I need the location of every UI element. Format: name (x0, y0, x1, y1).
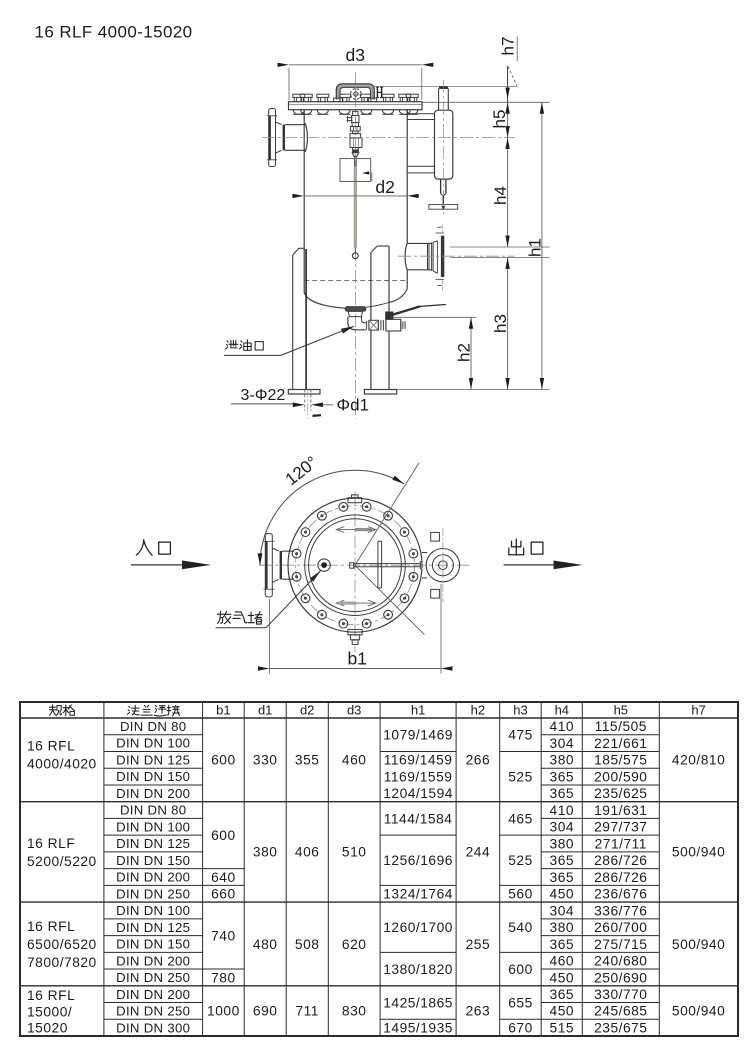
svg-text:380: 380 (253, 845, 278, 860)
svg-text:1169/1459: 1169/1459 (384, 753, 453, 768)
svg-text:540: 540 (508, 920, 533, 935)
svg-text:7800/7820: 7800/7820 (27, 955, 97, 970)
svg-text:DIN DN 150: DIN DN 150 (116, 937, 190, 952)
svg-text:16 RFL: 16 RFL (27, 919, 75, 934)
svg-text:460: 460 (342, 753, 367, 768)
svg-text:DIN DN 100: DIN DN 100 (116, 903, 190, 918)
svg-text:1380/1820: 1380/1820 (383, 962, 453, 977)
svg-text:525: 525 (508, 769, 533, 784)
svg-text:600: 600 (211, 828, 236, 843)
svg-text:h4: h4 (555, 703, 569, 718)
svg-text:410: 410 (550, 803, 575, 818)
svg-text:d1: d1 (258, 703, 272, 718)
svg-text:h1: h1 (411, 703, 425, 718)
svg-text:h2: h2 (455, 343, 474, 362)
svg-text:DIN DN 250: DIN DN 250 (116, 1004, 190, 1019)
svg-text:236/676: 236/676 (594, 887, 647, 902)
svg-text:1204/1594: 1204/1594 (383, 786, 453, 801)
svg-text:410: 410 (550, 719, 575, 734)
svg-text:4000/4020: 4000/4020 (27, 757, 97, 772)
svg-text:420/810: 420/810 (672, 753, 725, 768)
svg-text:600: 600 (211, 753, 236, 768)
svg-text:221/661: 221/661 (594, 736, 647, 751)
svg-text:740: 740 (211, 928, 236, 943)
svg-text:515: 515 (550, 1021, 575, 1036)
svg-text:380: 380 (550, 753, 575, 768)
svg-text:h4: h4 (491, 186, 510, 205)
svg-text:h1: h1 (526, 238, 545, 257)
svg-text:780: 780 (211, 970, 236, 985)
svg-text:450: 450 (550, 887, 575, 902)
svg-text:h5: h5 (490, 110, 509, 129)
svg-text:1144/1584: 1144/1584 (384, 811, 453, 826)
svg-text:244: 244 (466, 845, 491, 860)
svg-text:365: 365 (550, 853, 575, 868)
svg-text:365: 365 (550, 870, 575, 885)
svg-text:DIN DN 100: DIN DN 100 (116, 819, 190, 834)
svg-text:406: 406 (295, 845, 320, 860)
svg-text:475: 475 (508, 728, 533, 743)
svg-text:640: 640 (211, 870, 236, 885)
svg-text:DIN DN 150: DIN DN 150 (116, 853, 190, 868)
svg-text:d3: d3 (347, 703, 361, 718)
svg-text:1079/1469: 1079/1469 (383, 728, 453, 743)
svg-text:DIN DN 125: DIN DN 125 (116, 920, 190, 935)
svg-text:DIN DN 200: DIN DN 200 (116, 987, 190, 1002)
svg-text:330/770: 330/770 (594, 987, 647, 1002)
svg-text:365: 365 (550, 786, 575, 801)
svg-text:235/675: 235/675 (594, 1021, 647, 1036)
svg-text:1169/1559: 1169/1559 (384, 769, 453, 784)
svg-text:200/590: 200/590 (594, 769, 647, 784)
svg-text:600: 600 (508, 962, 533, 977)
svg-text:6500/6520: 6500/6520 (27, 937, 97, 952)
svg-text:5200/5220: 5200/5220 (27, 854, 97, 869)
svg-text:d2: d2 (375, 177, 394, 197)
svg-text:h3: h3 (491, 314, 510, 333)
svg-text:500/940: 500/940 (672, 1004, 725, 1019)
svg-text:15000/: 15000/ (27, 1005, 72, 1020)
svg-text:240/680: 240/680 (594, 954, 647, 969)
svg-text:620: 620 (342, 937, 367, 952)
svg-text:1324/1764: 1324/1764 (383, 887, 453, 902)
svg-text:480: 480 (253, 937, 278, 952)
svg-text:DIN DN 125: DIN DN 125 (116, 753, 190, 768)
svg-text:560: 560 (508, 887, 533, 902)
svg-text:1000: 1000 (207, 1004, 240, 1019)
svg-text:DIN DN 80: DIN DN 80 (120, 719, 186, 734)
svg-text:365: 365 (550, 769, 575, 784)
svg-text:16 RLF: 16 RLF (27, 836, 75, 851)
svg-text:271/711: 271/711 (595, 836, 647, 851)
svg-text:DIN DN 80: DIN DN 80 (120, 803, 186, 818)
svg-text:DIN DN 100: DIN DN 100 (116, 736, 190, 751)
svg-text:DIN DN 200: DIN DN 200 (116, 953, 190, 968)
svg-text:250/690: 250/690 (594, 970, 647, 985)
svg-text:15020: 15020 (27, 1021, 68, 1036)
svg-text:655: 655 (508, 995, 533, 1010)
svg-text:304: 304 (550, 903, 575, 918)
svg-text:115/505: 115/505 (595, 719, 647, 734)
svg-text:DIN DN 200: DIN DN 200 (116, 870, 190, 885)
svg-text:304: 304 (550, 736, 575, 751)
svg-text:DIN DN 300: DIN DN 300 (116, 1020, 190, 1035)
svg-text:260/700: 260/700 (594, 920, 647, 935)
svg-text:185/575: 185/575 (594, 753, 647, 768)
svg-text:DIN DN 150: DIN DN 150 (116, 769, 190, 784)
svg-text:1495/1935: 1495/1935 (383, 1021, 453, 1036)
svg-text:235/625: 235/625 (594, 786, 647, 801)
svg-text:465: 465 (508, 811, 533, 826)
svg-text:508: 508 (295, 937, 320, 952)
svg-text:b1: b1 (348, 649, 367, 669)
svg-text:380: 380 (550, 920, 575, 935)
svg-text:263: 263 (466, 1004, 491, 1019)
svg-text:460: 460 (550, 954, 575, 969)
svg-text:365: 365 (550, 937, 575, 952)
svg-text:h7: h7 (499, 37, 518, 56)
svg-text:510: 510 (342, 845, 367, 860)
svg-text:670: 670 (508, 1021, 533, 1036)
svg-text:525: 525 (508, 853, 533, 868)
svg-text:304: 304 (550, 820, 575, 835)
svg-text:355: 355 (295, 753, 320, 768)
svg-text:830: 830 (342, 1004, 367, 1019)
svg-text:Φd1: Φd1 (337, 396, 369, 415)
svg-text:1425/1865: 1425/1865 (383, 995, 453, 1010)
svg-text:330: 330 (253, 753, 278, 768)
svg-text:3-Φ22: 3-Φ22 (241, 387, 286, 404)
svg-text:266: 266 (466, 753, 491, 768)
svg-text:16 RFL: 16 RFL (27, 988, 75, 1003)
svg-text:500/940: 500/940 (672, 845, 725, 860)
svg-text:365: 365 (550, 987, 575, 1002)
svg-text:d2: d2 (300, 703, 314, 718)
svg-text:286/726: 286/726 (594, 870, 647, 885)
svg-text:297/737: 297/737 (594, 820, 647, 835)
svg-text:h3: h3 (513, 703, 527, 718)
svg-text:16 RLF 4000-15020: 16 RLF 4000-15020 (35, 23, 193, 42)
svg-text:275/715: 275/715 (594, 937, 647, 952)
svg-text:16 RFL: 16 RFL (27, 739, 75, 754)
svg-text:DIN DN 125: DIN DN 125 (116, 836, 190, 851)
svg-text:191/631: 191/631 (594, 803, 647, 818)
svg-text:336/776: 336/776 (594, 903, 647, 918)
svg-text:h7: h7 (691, 703, 705, 718)
svg-text:1260/1700: 1260/1700 (383, 920, 453, 935)
svg-text:DIN DN 250: DIN DN 250 (116, 970, 190, 985)
svg-text:b1: b1 (216, 703, 230, 718)
svg-text:711: 711 (295, 1004, 319, 1019)
svg-text:DIN DN 250: DIN DN 250 (116, 886, 190, 901)
svg-text:690: 690 (253, 1004, 278, 1019)
svg-text:DIN DN 200: DIN DN 200 (116, 786, 190, 801)
svg-text:255: 255 (466, 937, 491, 952)
svg-text:h5: h5 (614, 703, 628, 718)
svg-text:245/685: 245/685 (594, 1004, 647, 1019)
svg-text:d3: d3 (346, 45, 365, 65)
svg-text:450: 450 (550, 970, 575, 985)
svg-text:h2: h2 (471, 703, 485, 718)
svg-text:380: 380 (550, 836, 575, 851)
svg-text:500/940: 500/940 (672, 937, 725, 952)
svg-text:286/726: 286/726 (594, 853, 647, 868)
svg-text:450: 450 (550, 1004, 575, 1019)
svg-text:1256/1696: 1256/1696 (383, 853, 453, 868)
svg-text:660: 660 (211, 887, 236, 902)
